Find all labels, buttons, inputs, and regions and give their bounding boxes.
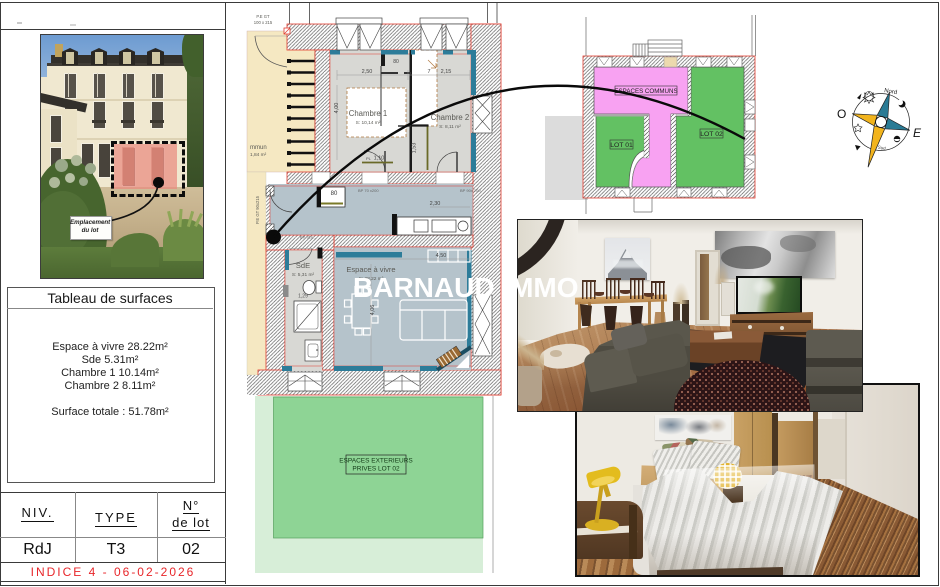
svg-text:4,06: 4,06: [370, 305, 376, 316]
svg-text:100 x 215: 100 x 215: [254, 20, 273, 25]
svg-text:LOT 01: LOT 01: [610, 142, 633, 149]
svg-text:7: 7: [427, 69, 430, 75]
svg-text:1,10: 1,10: [374, 156, 385, 162]
svg-text:BP 70 x200: BP 70 x200: [358, 188, 379, 193]
svg-text:1,84 m²: 1,84 m²: [250, 152, 267, 158]
svg-text:E: E: [913, 126, 922, 140]
svg-text:P.E GT: P.E GT: [256, 14, 270, 19]
svg-text:4,50: 4,50: [436, 253, 447, 259]
svg-text:PRIVES LOT 02: PRIVES LOT 02: [352, 466, 400, 473]
svg-text:4,00: 4,00: [334, 103, 340, 114]
svg-text:S: 10,14 m²: S: 10,14 m²: [356, 120, 381, 126]
svg-text:S: 5,31 m²: S: 5,31 m²: [292, 272, 315, 278]
svg-text:Nord: Nord: [884, 88, 898, 96]
svg-text:mmun: mmun: [250, 145, 267, 151]
svg-text:2,15: 2,15: [441, 69, 452, 75]
svg-text:80: 80: [331, 191, 338, 197]
svg-text:P.E GT 90x215: P.E GT 90x215: [255, 195, 260, 224]
svg-text:LOT 02: LOT 02: [700, 131, 723, 138]
svg-text:2,30: 2,30: [430, 201, 441, 207]
svg-text:BP 90x 200: BP 90x 200: [460, 188, 481, 193]
svg-text:80: 80: [393, 59, 399, 65]
svg-text:Chambre 1: Chambre 1: [349, 109, 388, 118]
svg-text:S: 8,11 m²: S: 8,11 m²: [439, 124, 461, 130]
svg-text:2,50: 2,50: [362, 69, 373, 75]
svg-text:ESPACES EXTERIEURS: ESPACES EXTERIEURS: [339, 458, 413, 465]
svg-text:PL: PL: [366, 156, 372, 161]
svg-text:SdE: SdE: [296, 261, 310, 270]
svg-text:BP 91x...: BP 91x...: [300, 235, 316, 240]
svg-text:Chambre 2: Chambre 2: [431, 113, 470, 122]
svg-text:1,29: 1,29: [298, 294, 308, 300]
svg-text:O: O: [837, 107, 846, 121]
svg-text:1,53: 1,53: [412, 143, 418, 154]
